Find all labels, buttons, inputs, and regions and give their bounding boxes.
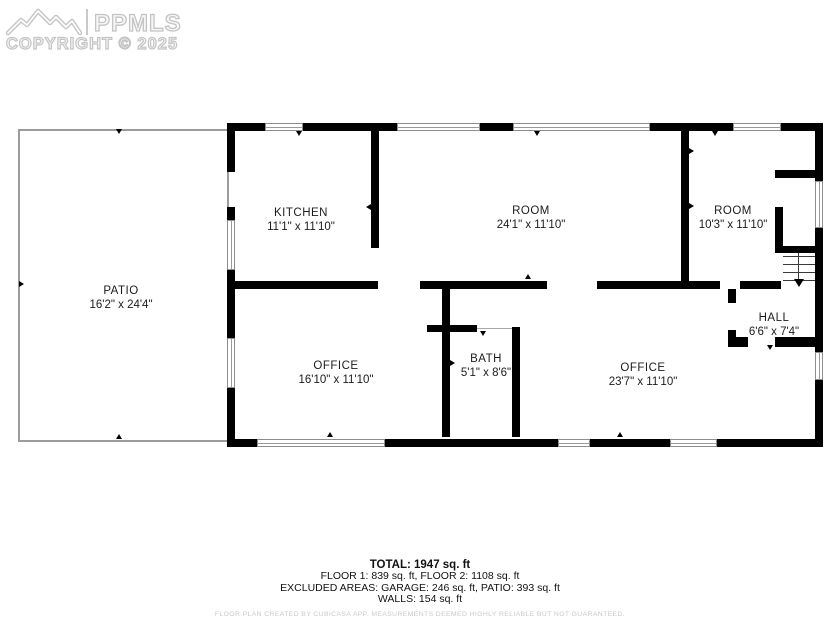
measure-tick bbox=[366, 204, 371, 210]
room-name: PATIO bbox=[89, 284, 152, 298]
measure-tick bbox=[689, 148, 694, 154]
wall-room-right bbox=[681, 131, 689, 285]
measure-tick bbox=[116, 129, 122, 134]
window bbox=[397, 123, 480, 131]
wall-stair-left bbox=[775, 207, 783, 250]
stair-tread bbox=[783, 256, 815, 257]
measure-tick bbox=[296, 131, 302, 136]
room-dimensions: 16'10" x 11'10" bbox=[298, 373, 373, 387]
room-dimensions: 6'6" x 7'4" bbox=[749, 325, 799, 339]
stair-tread bbox=[783, 264, 815, 265]
wall-hall-left bbox=[728, 289, 736, 303]
window bbox=[227, 338, 235, 388]
watermark-copyright: COPYRIGHT © 2025 bbox=[6, 35, 178, 54]
wall-office-bath bbox=[442, 289, 450, 437]
room-label-kitchen: KITCHEN 11'1" x 11'10" bbox=[267, 206, 335, 234]
disclaimer: FLOOR PLAN CREATED BY CUBICASA APP. MEAS… bbox=[0, 611, 840, 618]
measure-tick bbox=[116, 434, 122, 439]
wall-left bbox=[227, 123, 235, 172]
ppmls-mountain-logo-icon bbox=[6, 6, 82, 36]
stair-tread bbox=[783, 272, 815, 273]
room-name: HALL bbox=[749, 311, 799, 325]
room-dimensions: 10'3" x 11'10" bbox=[699, 218, 768, 232]
room-dimensions: 5'1" x 8'6" bbox=[461, 366, 511, 380]
wall-kitchen-right bbox=[371, 131, 379, 248]
room-dimensions: 16'2" x 24'4" bbox=[89, 298, 152, 312]
measure-tick bbox=[327, 432, 333, 437]
room-name: ROOM bbox=[699, 204, 768, 218]
watermark: PPMLS COPYRIGHT © 2025 bbox=[6, 4, 266, 60]
room-name: BATH bbox=[461, 352, 511, 366]
room-name: OFFICE bbox=[609, 361, 678, 375]
room-dimensions: 23'7" x 11'10" bbox=[609, 375, 678, 389]
wall-bath-top bbox=[427, 325, 477, 332]
measure-tick bbox=[767, 345, 773, 350]
room-label-office-left: OFFICE 16'10" x 11'10" bbox=[298, 359, 373, 387]
window bbox=[227, 220, 235, 270]
window bbox=[257, 439, 385, 447]
wall-mid bbox=[420, 281, 547, 289]
measure-tick bbox=[712, 131, 718, 136]
window bbox=[265, 123, 303, 131]
wall-mid bbox=[740, 281, 781, 289]
measure-tick bbox=[534, 131, 540, 136]
room-label-room-main: ROOM 24'1" x 11'10" bbox=[497, 204, 566, 232]
stair-down-arrow-icon bbox=[794, 279, 804, 287]
room-name: ROOM bbox=[497, 204, 566, 218]
wall-mid bbox=[597, 281, 720, 289]
room-label-hall: HALL 6'6" x 7'4" bbox=[749, 311, 799, 339]
window bbox=[513, 123, 650, 131]
measure-tick bbox=[450, 360, 455, 366]
wall-stair-top bbox=[775, 170, 823, 178]
window bbox=[815, 181, 823, 228]
stair-rail bbox=[798, 253, 799, 280]
wall-bath-right bbox=[512, 327, 520, 437]
room-label-office-right: OFFICE 23'7" x 11'10" bbox=[609, 361, 678, 389]
measure-tick bbox=[19, 281, 24, 287]
room-label-bath: BATH 5'1" x 8'6" bbox=[461, 352, 511, 380]
wall-right bbox=[815, 380, 823, 447]
watermark-brand: PPMLS bbox=[94, 10, 182, 38]
measure-tick bbox=[480, 331, 486, 336]
measure-tick bbox=[689, 203, 694, 209]
window bbox=[670, 439, 717, 447]
wall-stair-landing bbox=[775, 246, 823, 253]
room-dimensions: 24'1" x 11'10" bbox=[497, 218, 566, 232]
window bbox=[558, 439, 590, 447]
wall-hall-bottom bbox=[728, 337, 748, 347]
wall-mid bbox=[227, 281, 378, 289]
room-name: OFFICE bbox=[298, 359, 373, 373]
floor-plan-page: PPMLS COPYRIGHT © 2025 bbox=[0, 0, 840, 629]
room-label-patio: PATIO 16'2" x 24'4" bbox=[89, 284, 152, 312]
window bbox=[733, 123, 781, 131]
wall-left bbox=[227, 207, 235, 220]
watermark-divider bbox=[86, 9, 88, 35]
room-dimensions: 11'1" x 11'10" bbox=[267, 220, 335, 234]
room-label-room-upper-right: ROOM 10'3" x 11'10" bbox=[699, 204, 768, 232]
walls-area: WALLS: 154 sq. ft bbox=[0, 594, 840, 606]
area-summary: TOTAL: 1947 sq. ft FLOOR 1: 839 sq. ft, … bbox=[0, 559, 840, 618]
door-opening bbox=[477, 328, 512, 329]
floor-areas: FLOOR 1: 839 sq. ft, FLOOR 2: 1108 sq. f… bbox=[0, 571, 840, 583]
room-name: KITCHEN bbox=[267, 206, 335, 220]
window bbox=[815, 352, 823, 380]
staircase bbox=[783, 253, 815, 287]
measure-tick bbox=[617, 432, 623, 437]
measure-tick bbox=[525, 274, 531, 279]
